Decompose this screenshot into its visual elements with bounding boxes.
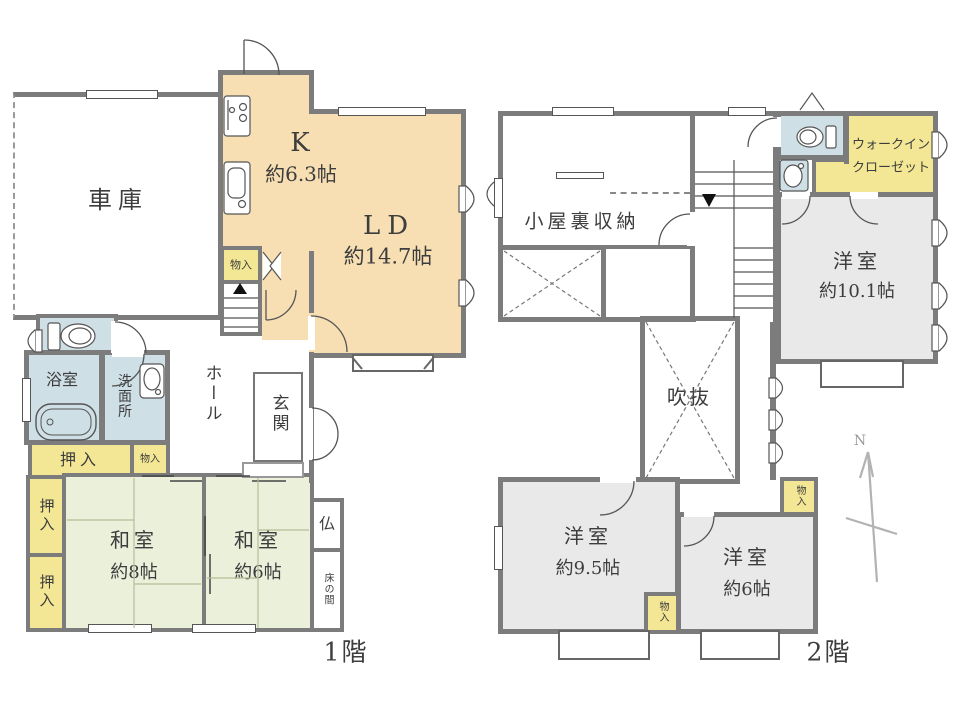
attic-cross-area — [498, 245, 606, 322]
washitsu8-size-label: 約8帖 — [110, 564, 157, 582]
wall-attic-dashed — [610, 192, 690, 194]
window-attic-left — [494, 178, 503, 218]
hall-label: ホール — [203, 364, 220, 424]
window-bath-left — [22, 378, 31, 422]
kitchen-room — [218, 70, 314, 251]
wall-corridor-east — [770, 322, 776, 480]
washitsu8-name-label: 和室 — [110, 530, 158, 550]
casement-window-attic-left — [487, 182, 494, 206]
entrance-porch — [242, 462, 304, 478]
washitsu8-room — [62, 473, 206, 632]
walkin-closet-main — [844, 111, 938, 197]
storage-stairs-label: 物入 — [230, 260, 252, 271]
window-washitsu8-bottom — [88, 624, 152, 633]
garage-label: 車庫 — [88, 188, 148, 212]
window-2f-top-a — [552, 107, 614, 116]
washitsu6-name-label: 和室 — [234, 530, 282, 550]
attic-storage-label: 小屋裏収納 — [524, 213, 639, 232]
sink-nook-2f — [776, 156, 816, 196]
washroom-room — [100, 350, 170, 445]
kitchen-vestibule — [262, 246, 309, 340]
butsudan-label: 仏 — [319, 516, 335, 532]
closet-left-lower-label: 押入 — [39, 574, 54, 610]
wic-label-line1: ウォークイン — [852, 139, 930, 152]
washitsu6-size-label: 約6帖 — [234, 564, 281, 582]
window-2f-top-b — [728, 107, 766, 116]
room101-name-label: 洋室 — [833, 251, 881, 271]
storage-95-label: 物入 — [657, 601, 667, 623]
staircase-2f — [690, 111, 778, 322]
room95-name-label: 洋室 — [564, 526, 612, 546]
washroom-label: 洗面所 — [117, 374, 131, 419]
bathroom-label: 浴室 — [46, 372, 78, 388]
closet-top-label: 押入 — [60, 452, 100, 468]
kitchen-size-label: 約6.3帖 — [265, 164, 337, 184]
floor-plan-canvas: 車庫 K 約6.3帖 LD 約14.7帖 物入 ホール 玄関 浴室 洗面所 押入… — [0, 0, 960, 720]
storage-small-label: 物入 — [140, 455, 160, 465]
storage-6-label: 物入 — [794, 485, 804, 507]
window-attic-inner — [556, 172, 604, 179]
upper-band-room-2f — [498, 111, 696, 179]
bay-window-6 — [700, 630, 780, 660]
bay-window-ld — [352, 354, 434, 372]
wall-2f-left-bottom — [600, 317, 696, 322]
tokonoma-label: 床の間 — [322, 573, 332, 606]
window-garage-top — [86, 90, 158, 99]
room6-size-label: 約6帖 — [723, 581, 770, 599]
floor1-label: 1階 — [324, 640, 369, 665]
room101-size-label: 約10.1帖 — [819, 283, 895, 301]
wall-hall-ld — [309, 251, 314, 313]
ld-name-label: LD — [363, 213, 415, 239]
toilet-room-2f — [776, 111, 848, 160]
window-95-left — [494, 526, 503, 570]
wic-label-line2: クローゼット — [852, 162, 930, 175]
staircase-1f — [220, 280, 262, 336]
void-label: 吹抜 — [667, 387, 711, 407]
roof-window-tick — [800, 93, 824, 110]
washitsu6-room — [202, 473, 314, 632]
floor2-label: 2階 — [807, 640, 852, 665]
window-ld-top — [338, 107, 426, 116]
wall-kitchen-right — [309, 70, 314, 114]
bay-window-101 — [820, 360, 904, 388]
western-room-101 — [776, 192, 938, 364]
bathroom-room — [24, 350, 104, 445]
north-arrow-icon — [846, 452, 897, 582]
window-washitsu6-bottom — [192, 624, 256, 633]
kitchen-name-label: K — [290, 130, 309, 156]
ld-size-label: 約14.7帖 — [344, 247, 433, 268]
entrance-label: 玄関 — [270, 394, 287, 434]
bay-window-95 — [558, 630, 650, 660]
room95-size-label: 約9.5帖 — [556, 560, 621, 578]
wall-entrance-east — [309, 352, 314, 483]
north-letter: N — [854, 434, 866, 448]
western-room-6 — [676, 512, 818, 634]
closet-left-upper-label: 押入 — [39, 498, 54, 534]
room6-name-label: 洋室 — [723, 547, 771, 567]
walkin-closet-seam — [842, 164, 850, 192]
